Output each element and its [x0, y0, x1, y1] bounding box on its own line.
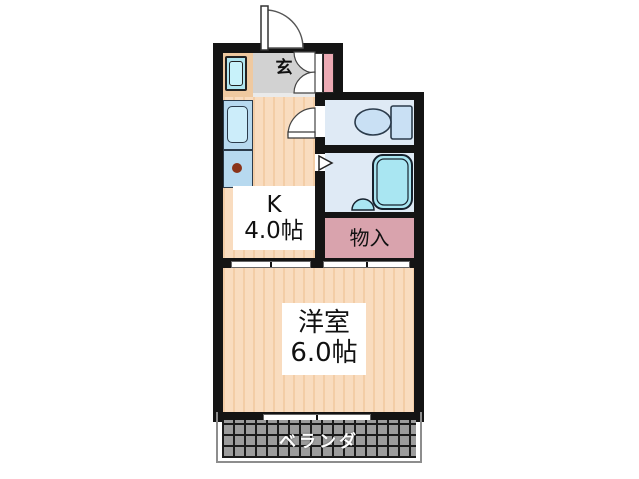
western-room-label: 洋室 6.0帖: [282, 303, 366, 375]
wall-toilet-top: [323, 92, 424, 100]
western-room-size: 6.0帖: [290, 339, 357, 369]
kitchen-size: 4.0帖: [244, 218, 304, 244]
storage-closet: 物入: [325, 218, 414, 258]
wall-toilet-bath: [315, 145, 424, 153]
kitchen-name: K: [266, 192, 281, 218]
balcony-deck: ベランダ: [222, 420, 416, 458]
sliding-door-kitchen-room: [231, 261, 311, 268]
sink-icon: [227, 106, 248, 143]
storage-label: 物入: [350, 227, 390, 250]
floor-plan: 物入 ベランダ 玄 K: [0, 0, 639, 479]
wall-top: [213, 43, 343, 53]
bathroom-doorway-gap: [315, 154, 325, 171]
entrance-label: 玄: [262, 59, 306, 79]
washing-machine-drum: [229, 61, 243, 86]
shoe-cabinet: [323, 53, 334, 93]
wall-left: [213, 43, 223, 422]
shoe-cabinet-door-panel: [314, 53, 323, 93]
balcony-label: ベランダ: [279, 427, 359, 452]
wall-right: [414, 92, 424, 422]
kitchen-label: K 4.0帖: [233, 186, 315, 250]
stove-burner-icon: [232, 163, 242, 173]
bathroom-floor: [325, 153, 414, 212]
sliding-door-storage-room: [323, 261, 410, 268]
kitchen-doorway-gap: [315, 106, 325, 137]
toilet-room-floor: [325, 100, 414, 145]
western-room-name: 洋室: [298, 309, 350, 339]
